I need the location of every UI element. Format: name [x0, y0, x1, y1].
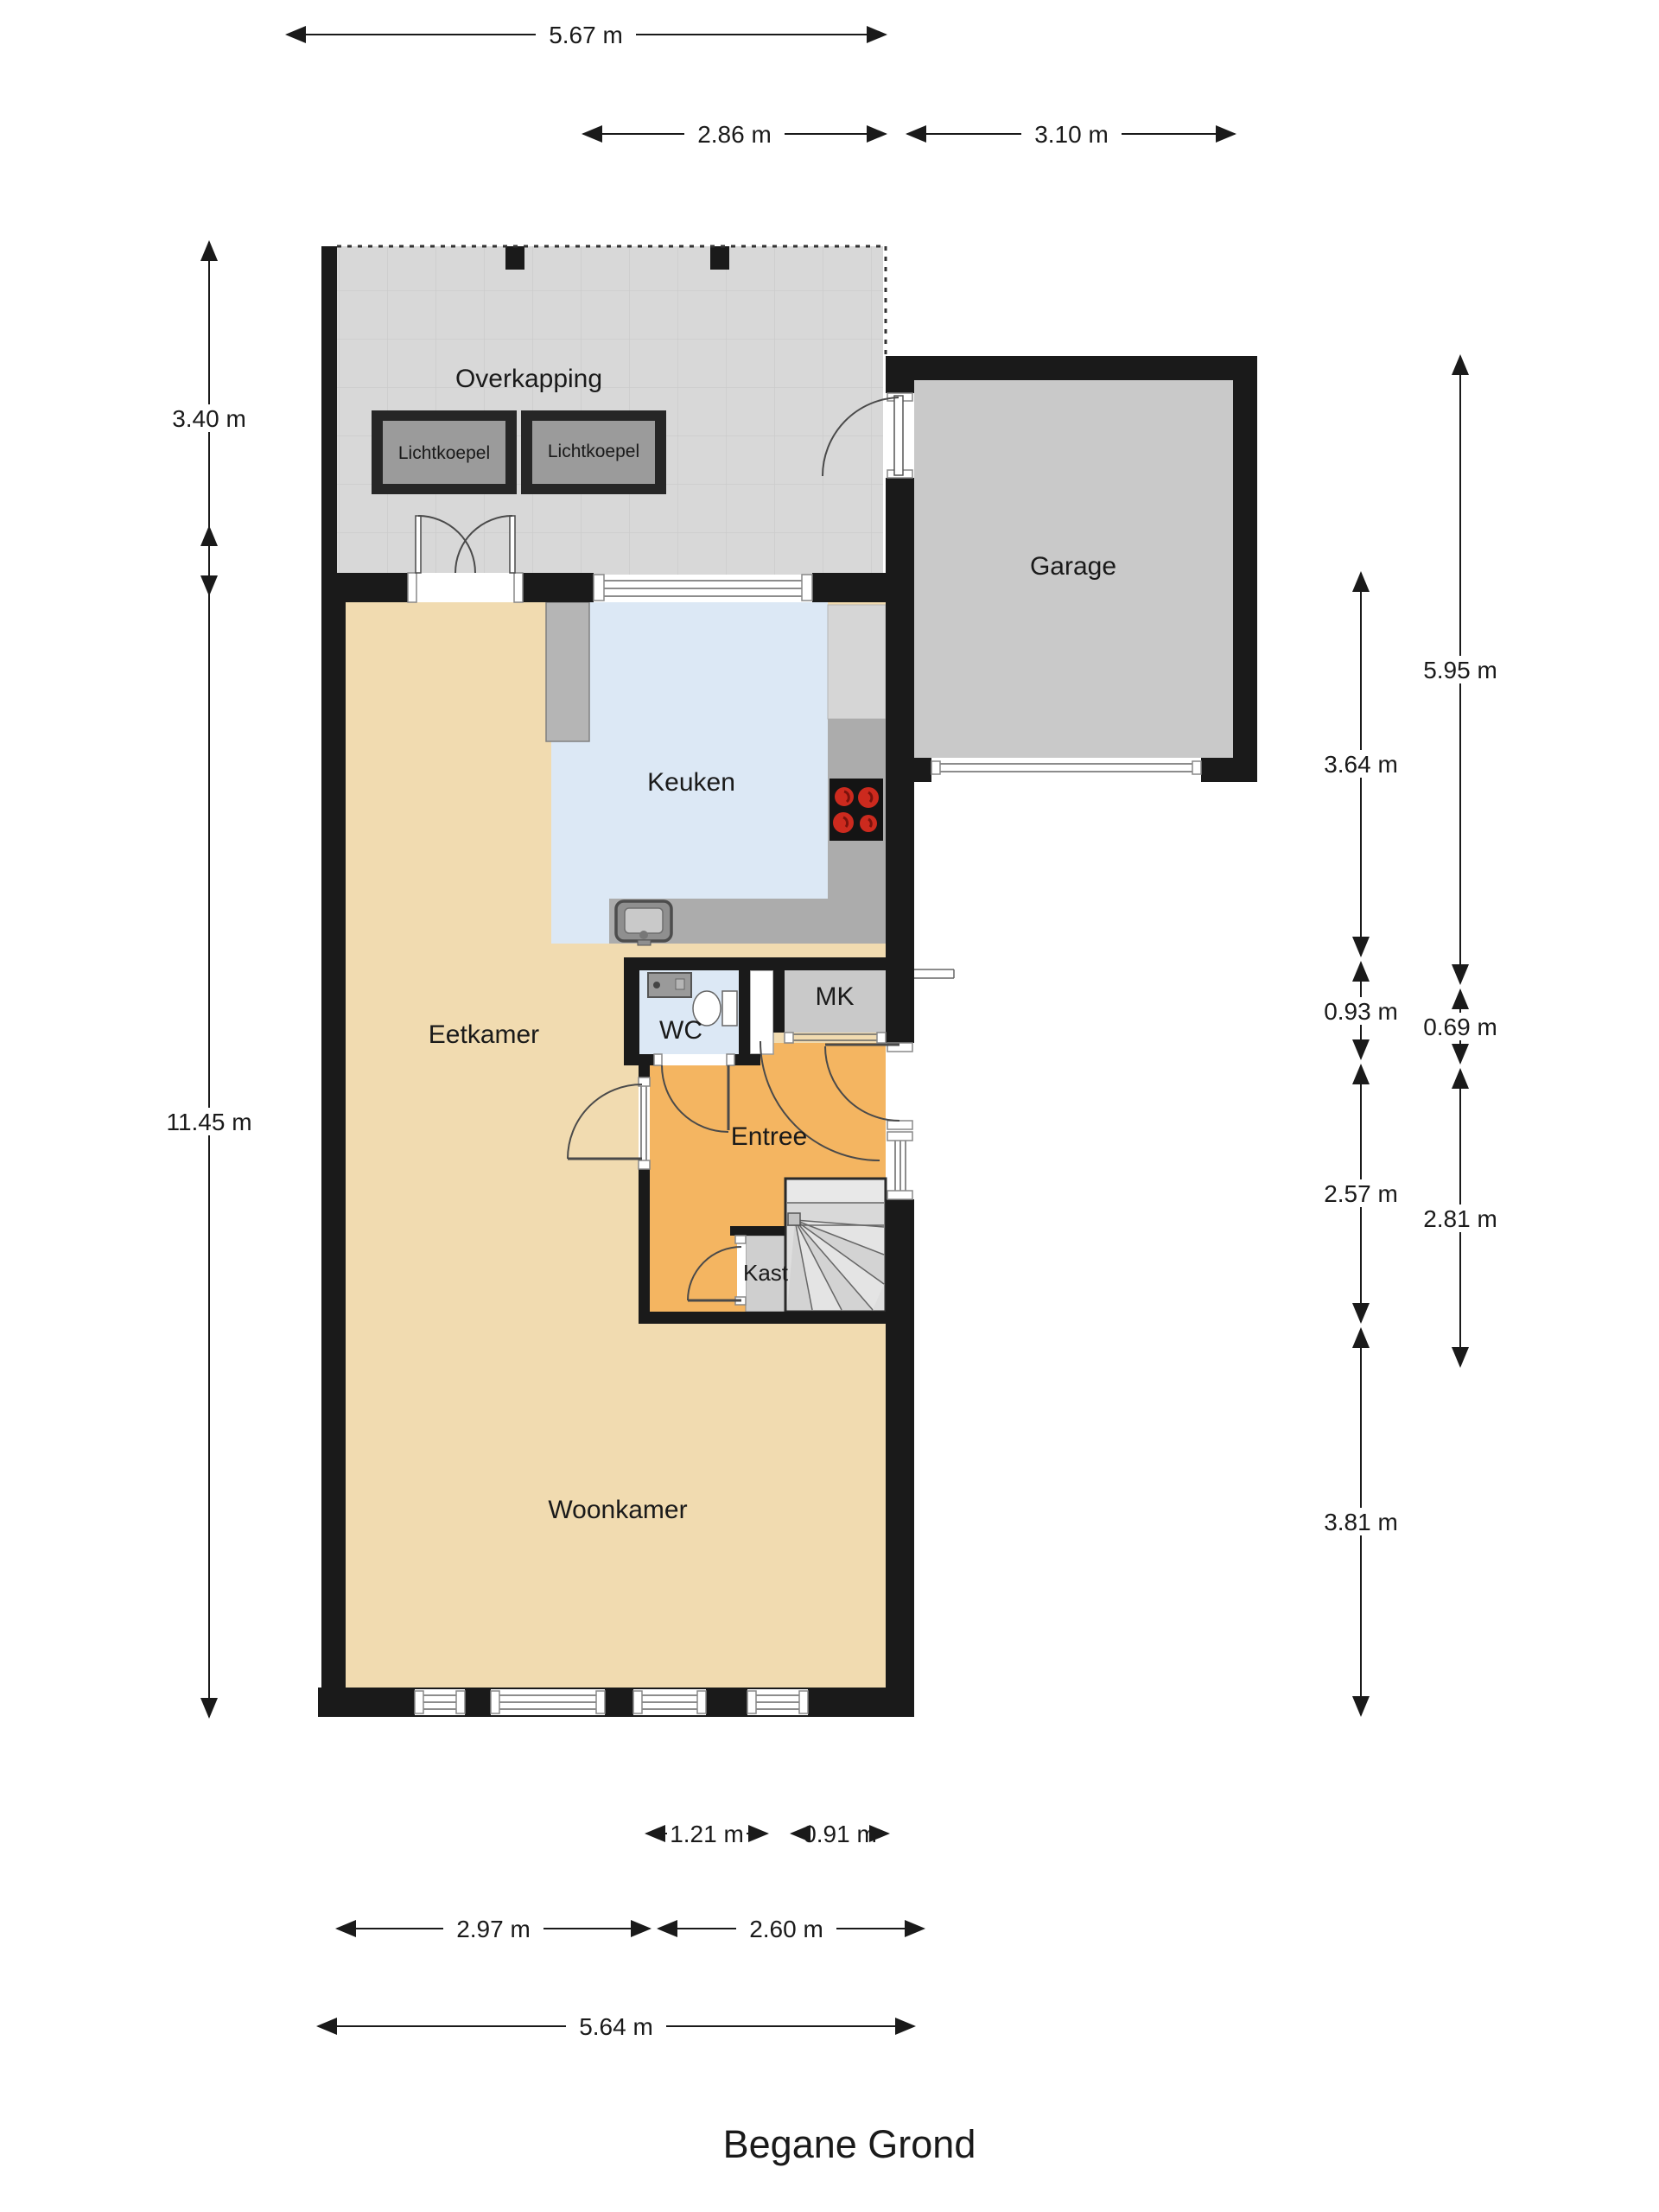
spiral-stairs — [785, 1179, 886, 1312]
door-leaf — [416, 516, 421, 573]
entree-window — [887, 1132, 912, 1199]
dim-right-outer-1: 5.95 m — [1423, 657, 1497, 683]
eetkamer-label: Eetkamer — [429, 1020, 539, 1049]
wc-drain — [676, 979, 684, 989]
burner-icon — [860, 815, 877, 832]
floorplan-canvas: Overkapping Lichtkoepel Lichtkoepel Gara… — [0, 0, 1659, 2212]
canopy-post — [710, 246, 729, 270]
keuken-window — [594, 575, 812, 601]
dim-top-right: 3.10 m — [1034, 121, 1109, 148]
entry-step — [914, 969, 954, 978]
dim-left-lower: 11.45 m — [166, 1109, 251, 1135]
dim-right-inner-4: 3.81 m — [1324, 1509, 1398, 1535]
floorplan-page: Overkapping Lichtkoepel Lichtkoepel Gara… — [0, 0, 1659, 2212]
stair-newel — [788, 1213, 800, 1225]
mk-label: MK — [816, 982, 855, 1011]
stair-tread — [787, 1180, 884, 1203]
dim-right-inner-3: 2.57 m — [1324, 1180, 1398, 1207]
lichtkoepel-label: Lichtkoepel — [548, 442, 639, 461]
south-facade — [412, 1688, 814, 1717]
lichtkoepel-label: Lichtkoepel — [398, 443, 490, 463]
tall-cabinet — [546, 602, 589, 741]
sink-faucet-icon — [639, 931, 648, 939]
page-title: Begane Grond — [723, 2122, 976, 2166]
burner-icon — [835, 787, 854, 806]
toilet-tank — [722, 991, 737, 1026]
burner-icon — [858, 787, 879, 808]
dim-bottom-mid-right: 2.60 m — [749, 1916, 823, 1942]
dim-right-outer-3: 2.81 m — [1423, 1205, 1497, 1232]
upper-cabinet — [828, 605, 886, 719]
garage-door — [931, 761, 1201, 774]
dim-right-inner-1: 3.64 m — [1324, 751, 1398, 778]
kast-label: Kast — [743, 1260, 789, 1286]
dim-bottom-small-left: 1.21 m — [670, 1821, 744, 1847]
dim-top-left: 2.86 m — [697, 121, 772, 148]
keuken-label: Keuken — [647, 768, 735, 797]
garage-label: Garage — [1030, 552, 1116, 581]
overkapping-label: Overkapping — [455, 365, 602, 393]
dim-bottom-total: 5.64 m — [579, 2013, 653, 2040]
burner-icon — [833, 812, 854, 833]
sink-tap — [638, 940, 651, 945]
dim-top-total: 5.67 m — [549, 22, 623, 48]
door-leaf — [510, 516, 515, 573]
stove-icon — [829, 779, 883, 841]
duct-slot — [750, 970, 773, 1054]
entree-label: Entree — [731, 1122, 807, 1151]
sink-basin — [625, 908, 663, 933]
wc-faucet-icon — [653, 982, 660, 988]
dim-bottom-mid-left: 2.97 m — [456, 1916, 531, 1942]
door-leaf — [894, 396, 903, 475]
canopy-post — [505, 246, 524, 270]
dim-right-inner-2: 0.93 m — [1324, 998, 1398, 1025]
dim-left-upper: 3.40 m — [172, 405, 246, 432]
woonkamer-label: Woonkamer — [548, 1496, 687, 1524]
dim-bottom-small-right: 0.91 m — [803, 1821, 877, 1847]
wc-label: WC — [659, 1016, 702, 1045]
dim-right-outer-2: 0.69 m — [1423, 1014, 1497, 1040]
